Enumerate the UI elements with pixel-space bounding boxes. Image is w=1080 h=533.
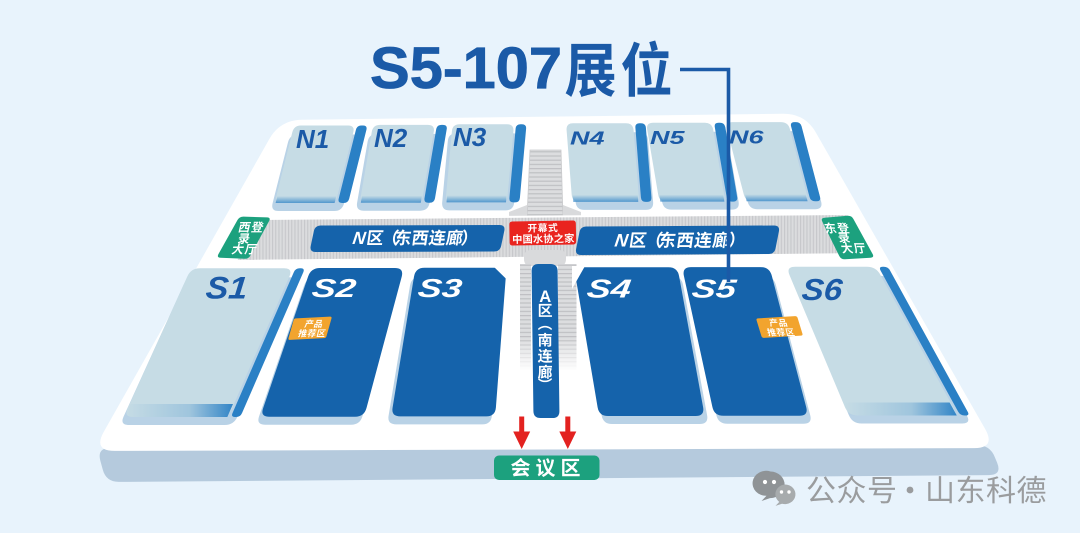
svg-text:N4: N4 [570,128,605,149]
svg-text:S4: S4 [585,274,633,303]
svg-text:S1: S1 [204,270,249,305]
svg-text:N3: N3 [453,122,487,152]
svg-text:N5: N5 [650,127,686,148]
svg-text:S2: S2 [310,274,358,303]
svg-text:A: A [539,288,551,306]
svg-text:S3: S3 [416,274,464,303]
svg-text:N6: N6 [729,127,764,148]
svg-text:N1: N1 [296,124,329,154]
svg-text:S5: S5 [690,274,738,303]
svg-text:N2: N2 [374,123,408,153]
svg-text:S5-107: S5-107 [370,36,562,101]
svg-text:S6: S6 [800,272,844,306]
